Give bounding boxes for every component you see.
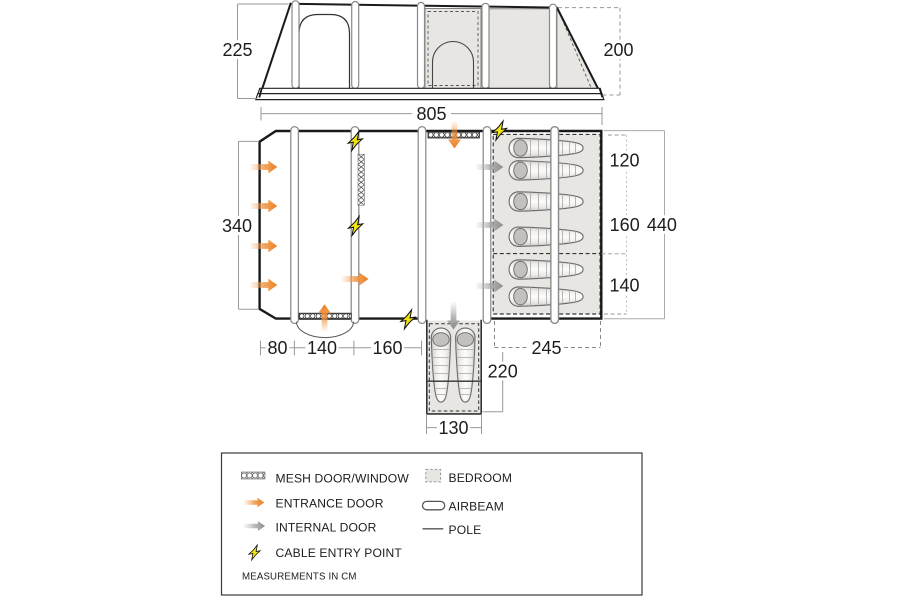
svg-text:140: 140 — [307, 338, 337, 358]
svg-text:245: 245 — [531, 338, 561, 358]
svg-text:MEASUREMENTS IN CM: MEASUREMENTS IN CM — [242, 572, 357, 583]
svg-text:200: 200 — [603, 40, 633, 60]
svg-text:POLE: POLE — [449, 523, 482, 537]
svg-text:225: 225 — [222, 40, 252, 60]
svg-text:140: 140 — [609, 275, 639, 295]
svg-text:BEDROOM: BEDROOM — [449, 471, 513, 485]
svg-text:440: 440 — [647, 215, 677, 235]
svg-text:160: 160 — [610, 215, 640, 235]
svg-text:220: 220 — [488, 361, 518, 381]
svg-text:340: 340 — [222, 216, 252, 236]
svg-text:CABLE ENTRY POINT: CABLE ENTRY POINT — [276, 546, 403, 560]
svg-text:AIRBEAM: AIRBEAM — [449, 500, 504, 514]
svg-text:805: 805 — [416, 104, 446, 124]
svg-text:ENTRANCE DOOR: ENTRANCE DOOR — [276, 496, 384, 510]
svg-text:160: 160 — [372, 338, 402, 358]
svg-text:120: 120 — [609, 150, 639, 170]
svg-text:80: 80 — [267, 338, 287, 358]
svg-text:130: 130 — [438, 418, 468, 438]
svg-text:INTERNAL DOOR: INTERNAL DOOR — [276, 520, 377, 534]
svg-text:MESH DOOR/WINDOW: MESH DOOR/WINDOW — [276, 471, 410, 485]
